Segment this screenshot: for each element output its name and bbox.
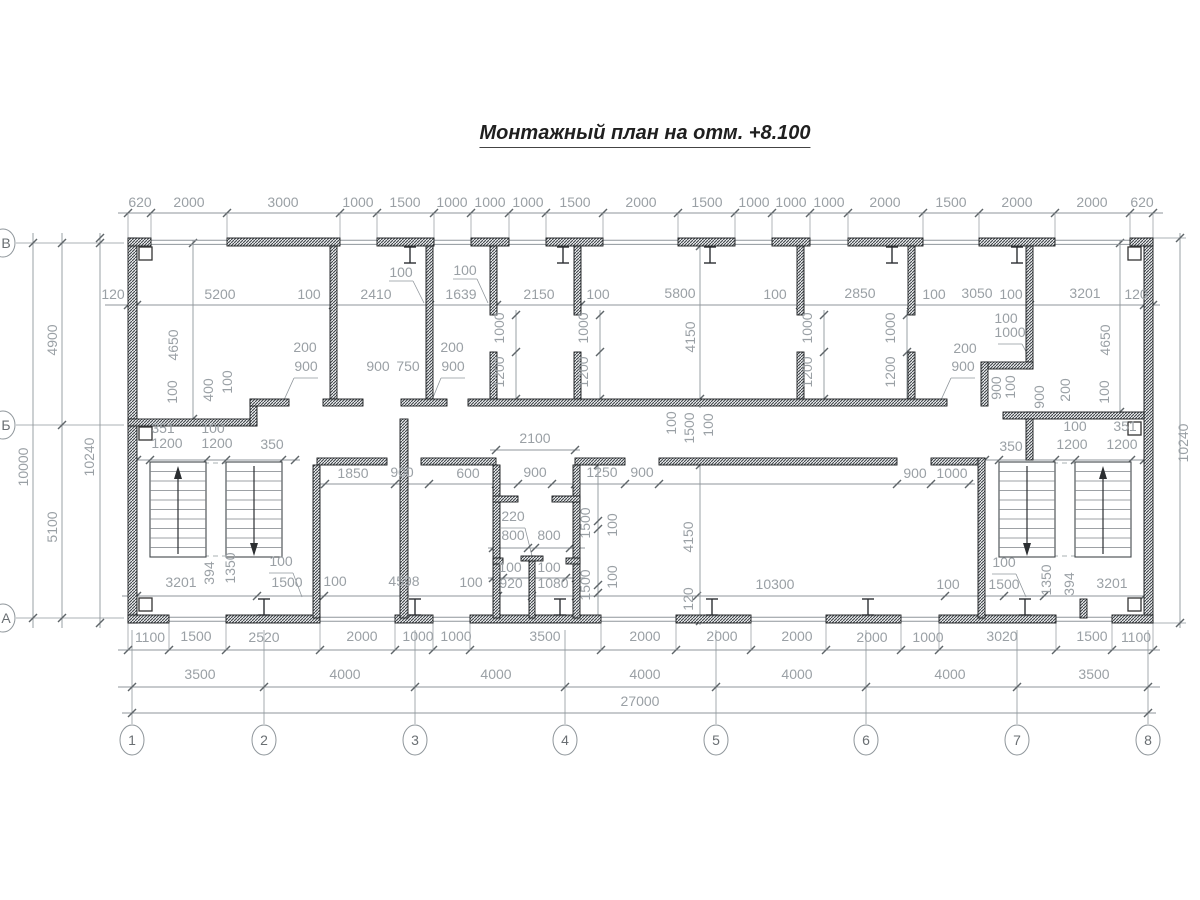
dim-label: 100 [922, 286, 946, 302]
wall-segment [797, 246, 804, 315]
dim-label: 1500 [577, 507, 593, 538]
wall-segment [978, 458, 985, 618]
dim-label: 200 [440, 339, 464, 355]
dim-label: 100 [459, 574, 483, 590]
dim-label: 1500 [559, 194, 590, 210]
dim-label: 2000 [629, 628, 660, 644]
dim-label: 1200 [151, 435, 182, 451]
wall-segment [659, 458, 897, 465]
dim-label: 4000 [480, 666, 511, 682]
dim-label: 10000 [15, 447, 31, 486]
dim-label: 394 [1061, 572, 1077, 596]
dim-label: 100 [1096, 380, 1112, 404]
dim-label: 1350 [1038, 564, 1054, 595]
dim-label: 351 [1113, 418, 1137, 434]
column-square [139, 247, 152, 260]
wall-segment [128, 419, 257, 426]
dim-label: 200 [953, 340, 977, 356]
wall-segment [226, 615, 320, 623]
dim-label: 350 [260, 436, 284, 452]
drawing-canvas: Монтажный план на отм. +8.100 6202000300… [0, 0, 1200, 900]
dim-label: 100 [164, 380, 180, 404]
dim-label: 1500 [1076, 628, 1107, 644]
wall-segment [826, 615, 901, 623]
dim-label: 620 [1130, 194, 1154, 210]
wall-segment [981, 362, 1033, 369]
dim-label: 2000 [856, 629, 887, 645]
wall-segment [1026, 246, 1033, 369]
dim-label: 1500 [271, 574, 302, 590]
dim-label: 1000 [813, 194, 844, 210]
dim-label: 3020 [986, 628, 1017, 644]
dim-label: 1500 [681, 412, 697, 443]
dim-label: 3201 [1096, 575, 1127, 591]
wall-segment [552, 496, 580, 502]
wall-segment [421, 458, 496, 465]
dim-label: 100 [936, 576, 960, 592]
dim-label: 394 [201, 561, 217, 585]
dim-label: 100 [201, 420, 225, 436]
dim-label: 1500 [988, 576, 1019, 592]
wall-segment [128, 238, 137, 623]
dim-label: 200 [293, 339, 317, 355]
dim-label: 1250 [586, 464, 617, 480]
wall-segment [1080, 599, 1087, 618]
dim-label: 3500 [529, 628, 560, 644]
dim-label: 1000 [994, 324, 1025, 340]
dim-label: 1000 [342, 194, 373, 210]
dim-label: 10240 [1175, 423, 1191, 462]
dim-label: 4598 [388, 573, 419, 589]
leader-line [284, 378, 294, 400]
wall-segment [493, 465, 500, 618]
dim-label: 1000 [775, 194, 806, 210]
dim-label: 750 [396, 358, 420, 374]
dim-label: 900 [903, 465, 927, 481]
leader-line [941, 378, 951, 400]
wall-segment [313, 465, 320, 618]
wall-segment [908, 352, 915, 399]
wall-segment [493, 496, 518, 502]
dim-label: 100 [498, 559, 522, 575]
wall-segment [377, 238, 434, 246]
dim-label: 1000 [402, 628, 433, 644]
grid-bubble-label: 7 [1013, 732, 1021, 748]
grid-bubble-label: 8 [1144, 732, 1152, 748]
dim-label: 2000 [346, 628, 377, 644]
dim-label: 2000 [625, 194, 656, 210]
dim-label: 920 [499, 575, 523, 591]
dim-label: 27000 [621, 693, 660, 709]
wall-segment [470, 615, 601, 623]
dim-label: 900 [441, 358, 465, 374]
leader-line [477, 279, 488, 303]
dim-label: 2410 [360, 286, 391, 302]
dim-label: 1639 [445, 286, 476, 302]
column-square [139, 598, 152, 611]
wall-segment [250, 399, 289, 406]
dim-label: 4000 [329, 666, 360, 682]
dim-label: 3500 [1078, 666, 1109, 682]
column-square [1128, 598, 1141, 611]
wall-segment [1130, 238, 1153, 246]
column-square [1128, 247, 1141, 260]
dim-label: 10240 [81, 437, 97, 476]
dim-label: 1500 [935, 194, 966, 210]
grid-bubble-label: 6 [862, 732, 870, 748]
wall-segment [529, 556, 535, 618]
dim-label: 1000 [491, 312, 507, 343]
wall-segment [676, 615, 751, 623]
wall-segment [426, 246, 433, 399]
dim-label: 1000 [440, 628, 471, 644]
dim-label: 1500 [691, 194, 722, 210]
dim-label: 2850 [844, 285, 875, 301]
grid-bubble-label: 3 [411, 732, 419, 748]
dim-label: 1080 [537, 575, 568, 591]
dim-label: 100 [219, 370, 235, 394]
dim-label: 1000 [436, 194, 467, 210]
dim-label: 200 [1057, 378, 1073, 402]
dim-label: 1000 [738, 194, 769, 210]
dim-label: 900 [1031, 385, 1047, 409]
dim-label: 4000 [781, 666, 812, 682]
dim-label: 800 [501, 527, 525, 543]
dim-label: 120 [101, 286, 125, 302]
dim-label: 3201 [165, 574, 196, 590]
dim-label: 1200 [882, 356, 898, 387]
dim-label: 3050 [961, 285, 992, 301]
dim-label: 620 [128, 194, 152, 210]
wall-segment [979, 238, 1055, 246]
dim-label: 5200 [204, 286, 235, 302]
dim-label: 900 [294, 358, 318, 374]
dim-label: 2000 [706, 628, 737, 644]
dim-label: 100 [269, 553, 293, 569]
dim-label: 2000 [1076, 194, 1107, 210]
dim-label: 900 [523, 464, 547, 480]
leader-line [413, 281, 424, 303]
dim-label: 1000 [474, 194, 505, 210]
dim-label: 3000 [267, 194, 298, 210]
dim-label: 350 [999, 438, 1023, 454]
dim-label: 100 [763, 286, 787, 302]
dim-label: 100 [453, 262, 477, 278]
wall-segment [546, 238, 603, 246]
dim-label: 1500 [389, 194, 420, 210]
dim-label: 2000 [869, 194, 900, 210]
dim-label: 4000 [629, 666, 660, 682]
dim-label: 2000 [781, 628, 812, 644]
dim-label: 2100 [519, 430, 550, 446]
dim-label: 4650 [1097, 324, 1113, 355]
dim-label: 100 [700, 413, 716, 437]
dim-label: 600 [456, 465, 480, 481]
dim-label: 2000 [173, 194, 204, 210]
dim-label: 4150 [682, 321, 698, 352]
dim-label: 2000 [1001, 194, 1032, 210]
dim-label: 100 [1002, 375, 1018, 399]
wall-segment [317, 458, 387, 465]
grid-bubble-label: 5 [712, 732, 720, 748]
wall-segment [323, 399, 363, 406]
wall-segment [931, 458, 985, 465]
dim-label: 100 [297, 286, 321, 302]
dim-label: 1200 [201, 435, 232, 451]
wall-segment [468, 399, 947, 406]
wall-segment [908, 246, 915, 315]
drawing-title: Монтажный план на отм. +8.100 [479, 122, 810, 148]
dim-label: 100 [604, 565, 620, 589]
grid-bubble-label: В [1, 235, 10, 251]
dim-label: 1350 [222, 552, 238, 583]
wall-segment [227, 238, 340, 246]
wall-segment [574, 246, 581, 315]
dim-label: 100 [604, 513, 620, 537]
dim-label: 900 [630, 464, 654, 480]
grid-bubble-label: 4 [561, 732, 569, 748]
wall-segment [1112, 615, 1153, 623]
dim-label: 900 [366, 358, 390, 374]
wall-segment [566, 558, 580, 564]
dim-label: 4900 [44, 324, 60, 355]
grid-bubble-label: А [1, 610, 11, 626]
wall-segment [848, 238, 923, 246]
dim-label: 1000 [799, 312, 815, 343]
dim-label: 2150 [523, 286, 554, 302]
dim-label: 900 [390, 464, 414, 480]
dim-label: 1200 [799, 356, 815, 387]
dim-label: 1000 [512, 194, 543, 210]
dim-label: 100 [586, 286, 610, 302]
dim-label: 1200 [1106, 436, 1137, 452]
wall-segment [128, 615, 169, 623]
wall-segment [772, 238, 810, 246]
dim-label: 1500 [180, 628, 211, 644]
dim-label: 120 [1124, 286, 1148, 302]
dim-label: 100 [992, 554, 1016, 570]
dim-label: 100 [663, 411, 679, 435]
wall-segment [330, 246, 337, 399]
dim-label: 351 [151, 420, 175, 436]
dim-label: 1000 [882, 312, 898, 343]
dim-label: 1000 [912, 629, 943, 645]
wall-segment [471, 238, 509, 246]
dim-label: 400 [200, 378, 216, 402]
dim-label: 1100 [1121, 629, 1151, 645]
dim-label: 1000 [936, 465, 967, 481]
dim-label: 4000 [934, 666, 965, 682]
dim-label: 100 [323, 573, 347, 589]
dim-label: 1200 [1056, 436, 1087, 452]
dim-label: 1100 [135, 629, 165, 645]
dim-label: 3201 [1069, 285, 1100, 301]
dim-label: 900 [951, 358, 975, 374]
dim-label: 100 [389, 264, 413, 280]
dim-label: 10300 [756, 576, 795, 592]
dim-label: 120 [680, 587, 696, 611]
dim-label: 100 [537, 559, 561, 575]
wall-segment [401, 399, 447, 406]
grid-bubble-label: Б [1, 417, 10, 433]
grid-bubble-label: 1 [128, 732, 136, 748]
wall-segment [678, 238, 735, 246]
column-square [139, 427, 152, 440]
wall-segment [128, 238, 151, 246]
wall-segment [939, 615, 1056, 623]
dim-label: 1000 [575, 312, 591, 343]
dim-label: 100 [1063, 418, 1087, 434]
wall-segment [981, 362, 988, 406]
dim-label: 1200 [575, 356, 591, 387]
dim-label: 1500 [577, 569, 593, 600]
dim-label: 5100 [44, 511, 60, 542]
dim-label: 220 [501, 508, 525, 524]
dim-label: 3500 [184, 666, 215, 682]
dim-label: 5800 [664, 285, 695, 301]
dim-label: 800 [537, 527, 561, 543]
dim-label: 1850 [337, 465, 368, 481]
grid-bubble-label: 2 [260, 732, 268, 748]
dim-label: 2520 [248, 629, 279, 645]
wall-segment [490, 246, 497, 315]
dim-label: 1200 [491, 356, 507, 387]
dim-label: 4150 [680, 521, 696, 552]
dim-label: 4650 [165, 329, 181, 360]
dim-label: 100 [999, 286, 1023, 302]
